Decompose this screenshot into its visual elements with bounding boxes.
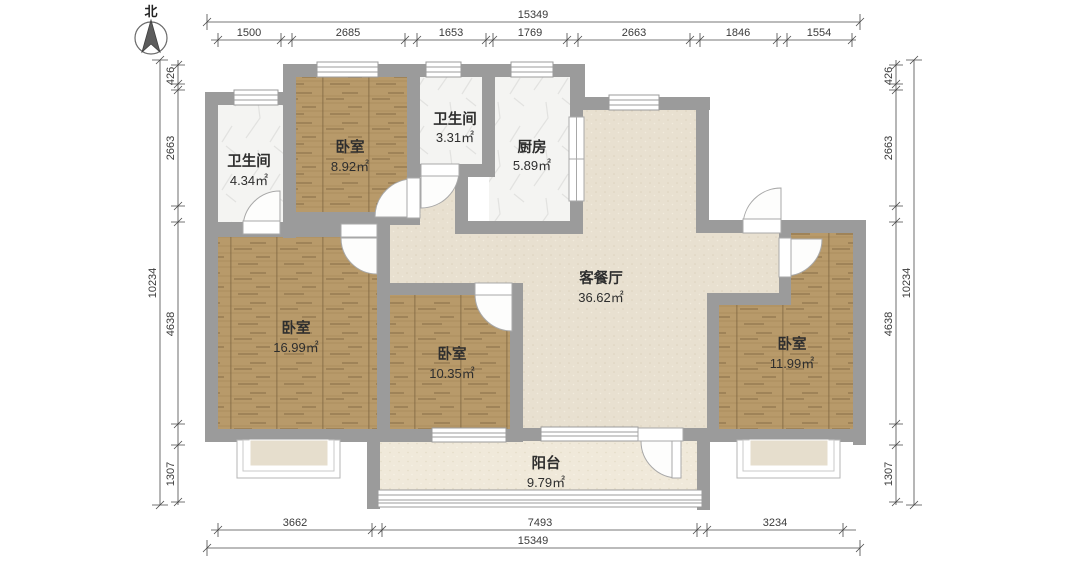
bay-window-bed-right [737, 440, 840, 478]
window-kitchen-top [511, 62, 553, 77]
dim-top-seg-2: 1653 [439, 27, 463, 39]
dim-top-seg-6: 1554 [807, 27, 831, 39]
window-bed-mid-balcony [432, 428, 506, 442]
window-balcony-bottom [378, 490, 702, 507]
window-living-balcony [541, 427, 638, 441]
room-living-area: 36.62㎡ [578, 290, 624, 305]
dim-bottom-seg-0: 3662 [283, 517, 307, 529]
floor-plan-canvas: 卫生间 4.34㎡ 卧室 8.92㎡ 卫生间 3.31㎡ 厨房 5.89㎡ 客餐… [0, 0, 1074, 576]
room-balcony-name: 阳台 [532, 454, 561, 472]
window-bed-small-top [317, 62, 378, 77]
dim-right-seg-0: 426 [883, 67, 895, 85]
dim-left-seg-0: 426 [165, 67, 177, 85]
floor-plan-page: 卫生间 4.34㎡ 卧室 8.92㎡ 卫生间 3.31㎡ 厨房 5.89㎡ 客餐… [0, 0, 1074, 576]
room-bath2-area: 3.31㎡ [436, 130, 474, 145]
north-compass: 北 [135, 4, 167, 54]
room-bed-right-area: 11.99㎡ [770, 356, 815, 371]
room-kitchen-area: 5.89㎡ [513, 158, 551, 173]
dim-left-seg-3: 1307 [165, 462, 177, 486]
room-bed-small-name: 卧室 [336, 138, 365, 156]
dim-left-total: 10234 [147, 268, 159, 299]
dim-top-seg-1: 2685 [336, 27, 360, 39]
door-kitchen-sliding [569, 117, 584, 201]
dim-top-seg-5: 1846 [726, 27, 750, 39]
dim-left-seg-1: 2663 [165, 136, 177, 160]
dim-top-total: 15349 [518, 9, 549, 21]
dim-top-seg-4: 2663 [622, 27, 646, 39]
dim-top-seg-3: 1769 [518, 27, 542, 39]
room-bed-small-area: 8.92㎡ [331, 159, 369, 174]
room-bed-left-name: 卧室 [282, 319, 311, 337]
room-bed-mid-name: 卧室 [438, 345, 467, 363]
north-arrow-icon [142, 20, 160, 52]
room-bed-right-name: 卧室 [778, 335, 807, 353]
room-bed-mid-area: 10.35㎡ [429, 366, 475, 381]
room-kitchen-name: 厨房 [518, 138, 547, 156]
room-bath1-area: 4.34㎡ [230, 173, 268, 188]
dim-top-seg-0: 1500 [237, 27, 261, 39]
dim-left-seg-2: 4638 [165, 312, 177, 336]
bay-window-bed-left [237, 440, 340, 478]
room-bed-left-area: 16.99㎡ [273, 340, 319, 355]
dim-right-seg-1: 2663 [883, 136, 895, 160]
window-living-top [609, 95, 659, 110]
dim-bottom-seg-2: 3234 [763, 517, 787, 529]
dim-bottom-total: 15349 [518, 535, 549, 547]
room-bath1-name: 卫生间 [227, 152, 271, 170]
room-balcony-area: 9.79㎡ [527, 475, 565, 490]
door-entry [743, 188, 781, 233]
dim-bottom-seg-1: 7493 [528, 517, 552, 529]
dim-right-seg-2: 4638 [883, 312, 895, 336]
dim-right-total: 10234 [901, 268, 913, 299]
north-label: 北 [144, 4, 157, 19]
dim-right-seg-3: 1307 [883, 462, 895, 486]
window-bath1-top [234, 90, 278, 105]
window-bath2-top [426, 62, 461, 77]
room-living-name: 客餐厅 [578, 269, 623, 287]
room-bath2-name: 卫生间 [433, 110, 477, 128]
